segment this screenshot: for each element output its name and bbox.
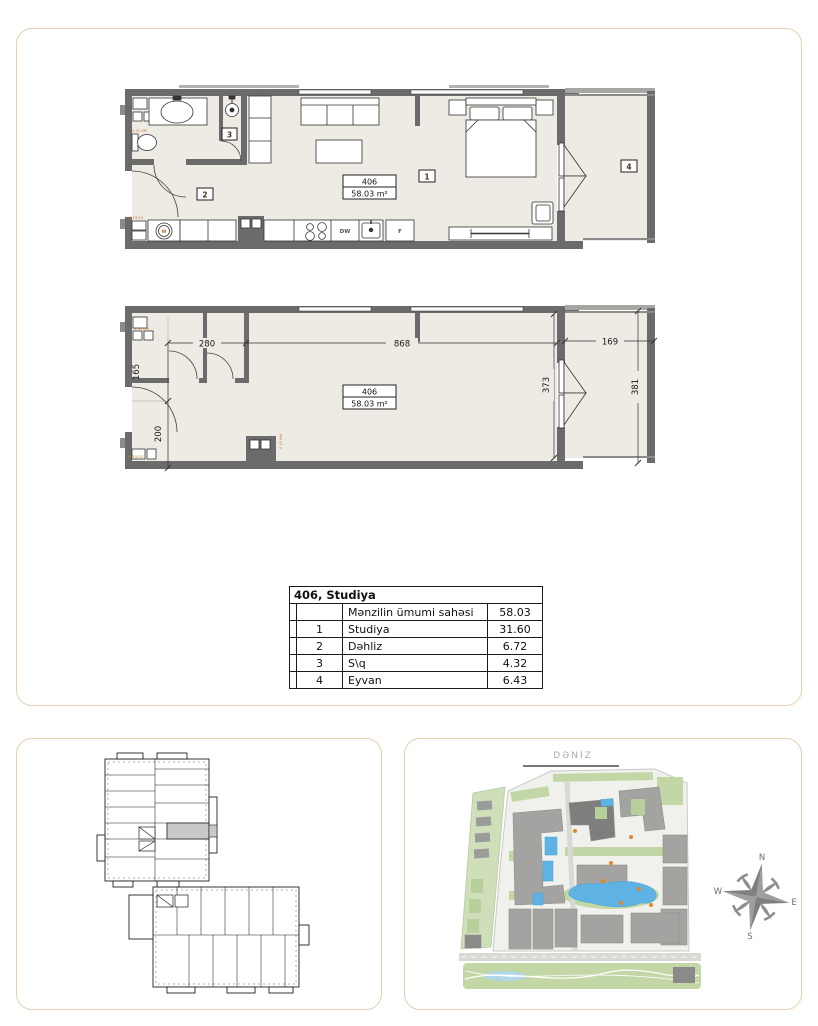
floor-key-panel bbox=[16, 738, 382, 1010]
unit-tag: 406 58.03 m² bbox=[343, 385, 396, 409]
unit-plan-panel: W DW F 1 2 3 4 406 58.03 m² S Gİ HM HS 1… bbox=[16, 28, 802, 706]
row-label: Studiya bbox=[343, 621, 488, 638]
bed bbox=[466, 120, 536, 177]
compass-rose bbox=[717, 858, 796, 937]
compass-east: E bbox=[791, 898, 796, 908]
shaft-label: S Gİ HM bbox=[278, 434, 283, 449]
nightstand bbox=[449, 100, 466, 115]
sink bbox=[161, 101, 193, 123]
headboard bbox=[466, 98, 536, 105]
floorplan-dimensioned: 280 868 169 165 200 373 381 406 58.03 m²… bbox=[119, 297, 664, 487]
site-plan: DƏNİZ bbox=[405, 739, 801, 1009]
row-num: 2 bbox=[297, 638, 343, 655]
riser-label-bottom: HS 15/15 bbox=[126, 454, 144, 459]
table-row: 3 S\q 4.32 bbox=[290, 655, 543, 672]
dim-165: 165 bbox=[132, 364, 142, 380]
row-value: 4.32 bbox=[488, 655, 543, 672]
row-value: 58.03 bbox=[488, 604, 543, 621]
small-building bbox=[465, 935, 481, 948]
dim-200: 200 bbox=[154, 426, 164, 442]
listing-sheet: W DW F 1 2 3 4 406 58.03 m² S Gİ HM HS 1… bbox=[0, 0, 818, 1026]
park bbox=[463, 963, 701, 989]
unit-number: 406 bbox=[362, 388, 377, 397]
row-value: 6.72 bbox=[488, 638, 543, 655]
courtyard-pool bbox=[543, 861, 553, 881]
compass-south: S bbox=[747, 932, 752, 942]
row-label: Mənzilin ümumi sahəsi bbox=[343, 604, 488, 621]
highlighted-unit-balcony bbox=[209, 825, 217, 837]
nightstand bbox=[536, 100, 553, 115]
park-building bbox=[673, 967, 695, 983]
row-label: Dəhliz bbox=[343, 638, 488, 655]
room-4-tag: 4 bbox=[626, 163, 631, 172]
table-row: 4 Eyvan 6.43 bbox=[290, 672, 543, 689]
kitchen bbox=[132, 219, 414, 241]
shower-head bbox=[229, 96, 235, 99]
table-row: Mənzilin ümumi sahəsi 58.03 bbox=[290, 604, 543, 621]
fridge-label: F bbox=[398, 229, 402, 235]
highlighted-unit bbox=[167, 823, 209, 839]
row-label: S\q bbox=[343, 655, 488, 672]
row-value: 6.43 bbox=[488, 672, 543, 689]
floor-key-plan bbox=[17, 739, 381, 1009]
compass-north: N bbox=[759, 853, 765, 863]
sea-label: DƏNİZ bbox=[553, 750, 593, 761]
site-plan-panel: DƏNİZ bbox=[404, 738, 802, 1010]
room-2-tag: 2 bbox=[202, 191, 207, 200]
room-3-tag: 3 bbox=[227, 131, 232, 140]
dim-280: 280 bbox=[199, 340, 215, 350]
row-num: 1 bbox=[297, 621, 343, 638]
stove-burner bbox=[306, 232, 315, 241]
riser-label-top: S Gİ HM bbox=[132, 128, 147, 133]
row-num: 3 bbox=[297, 655, 343, 672]
unit-area: 58.03 m² bbox=[351, 190, 387, 199]
area-table-title: 406, Studiya bbox=[290, 587, 543, 604]
dim-169: 169 bbox=[602, 338, 618, 348]
courtyard-pool bbox=[545, 837, 557, 855]
floorplan-furnished: W DW F 1 2 3 4 406 58.03 m² S Gİ HM HS 1… bbox=[119, 83, 664, 263]
washer-label: W bbox=[162, 229, 167, 235]
compass-west: W bbox=[714, 887, 723, 897]
stove-burner bbox=[318, 223, 327, 232]
table-row: 2 Dəhliz 6.72 bbox=[290, 638, 543, 655]
cabinet bbox=[133, 112, 142, 121]
sofa bbox=[301, 98, 379, 125]
windows bbox=[299, 307, 523, 311]
riser-label-top: S Gİ HM bbox=[134, 326, 149, 331]
stove-burner bbox=[319, 233, 326, 240]
dim-868: 868 bbox=[394, 340, 410, 350]
table-row: 1 Studiya 31.60 bbox=[290, 621, 543, 638]
unit-tag: 406 58.03 m² bbox=[343, 175, 396, 199]
unit-area: 58.03 m² bbox=[351, 400, 387, 409]
dim-381: 381 bbox=[631, 379, 641, 395]
row-num bbox=[297, 604, 343, 621]
pillow bbox=[503, 107, 532, 120]
room-1-tag: 1 bbox=[424, 173, 429, 182]
building-outline bbox=[97, 753, 309, 993]
row-num: 4 bbox=[297, 672, 343, 689]
toilet-bowl bbox=[138, 135, 157, 151]
stove-burner bbox=[307, 224, 314, 231]
coffee-table bbox=[316, 140, 362, 163]
dishwasher-label: DW bbox=[340, 229, 351, 235]
pillow bbox=[470, 107, 499, 120]
dim-373: 373 bbox=[542, 377, 552, 393]
area-table: 406, Studiya Mənzilin ümumi sahəsi 58.03… bbox=[289, 586, 543, 689]
cabinet bbox=[133, 98, 147, 109]
row-value: 31.60 bbox=[488, 621, 543, 638]
windows bbox=[299, 90, 523, 94]
faucet bbox=[173, 96, 181, 100]
row-label: Eyvan bbox=[343, 672, 488, 689]
wardrobe bbox=[249, 96, 271, 163]
riser-label-bottom: HS 15/15 bbox=[126, 215, 144, 220]
unit-number: 406 bbox=[362, 178, 377, 187]
